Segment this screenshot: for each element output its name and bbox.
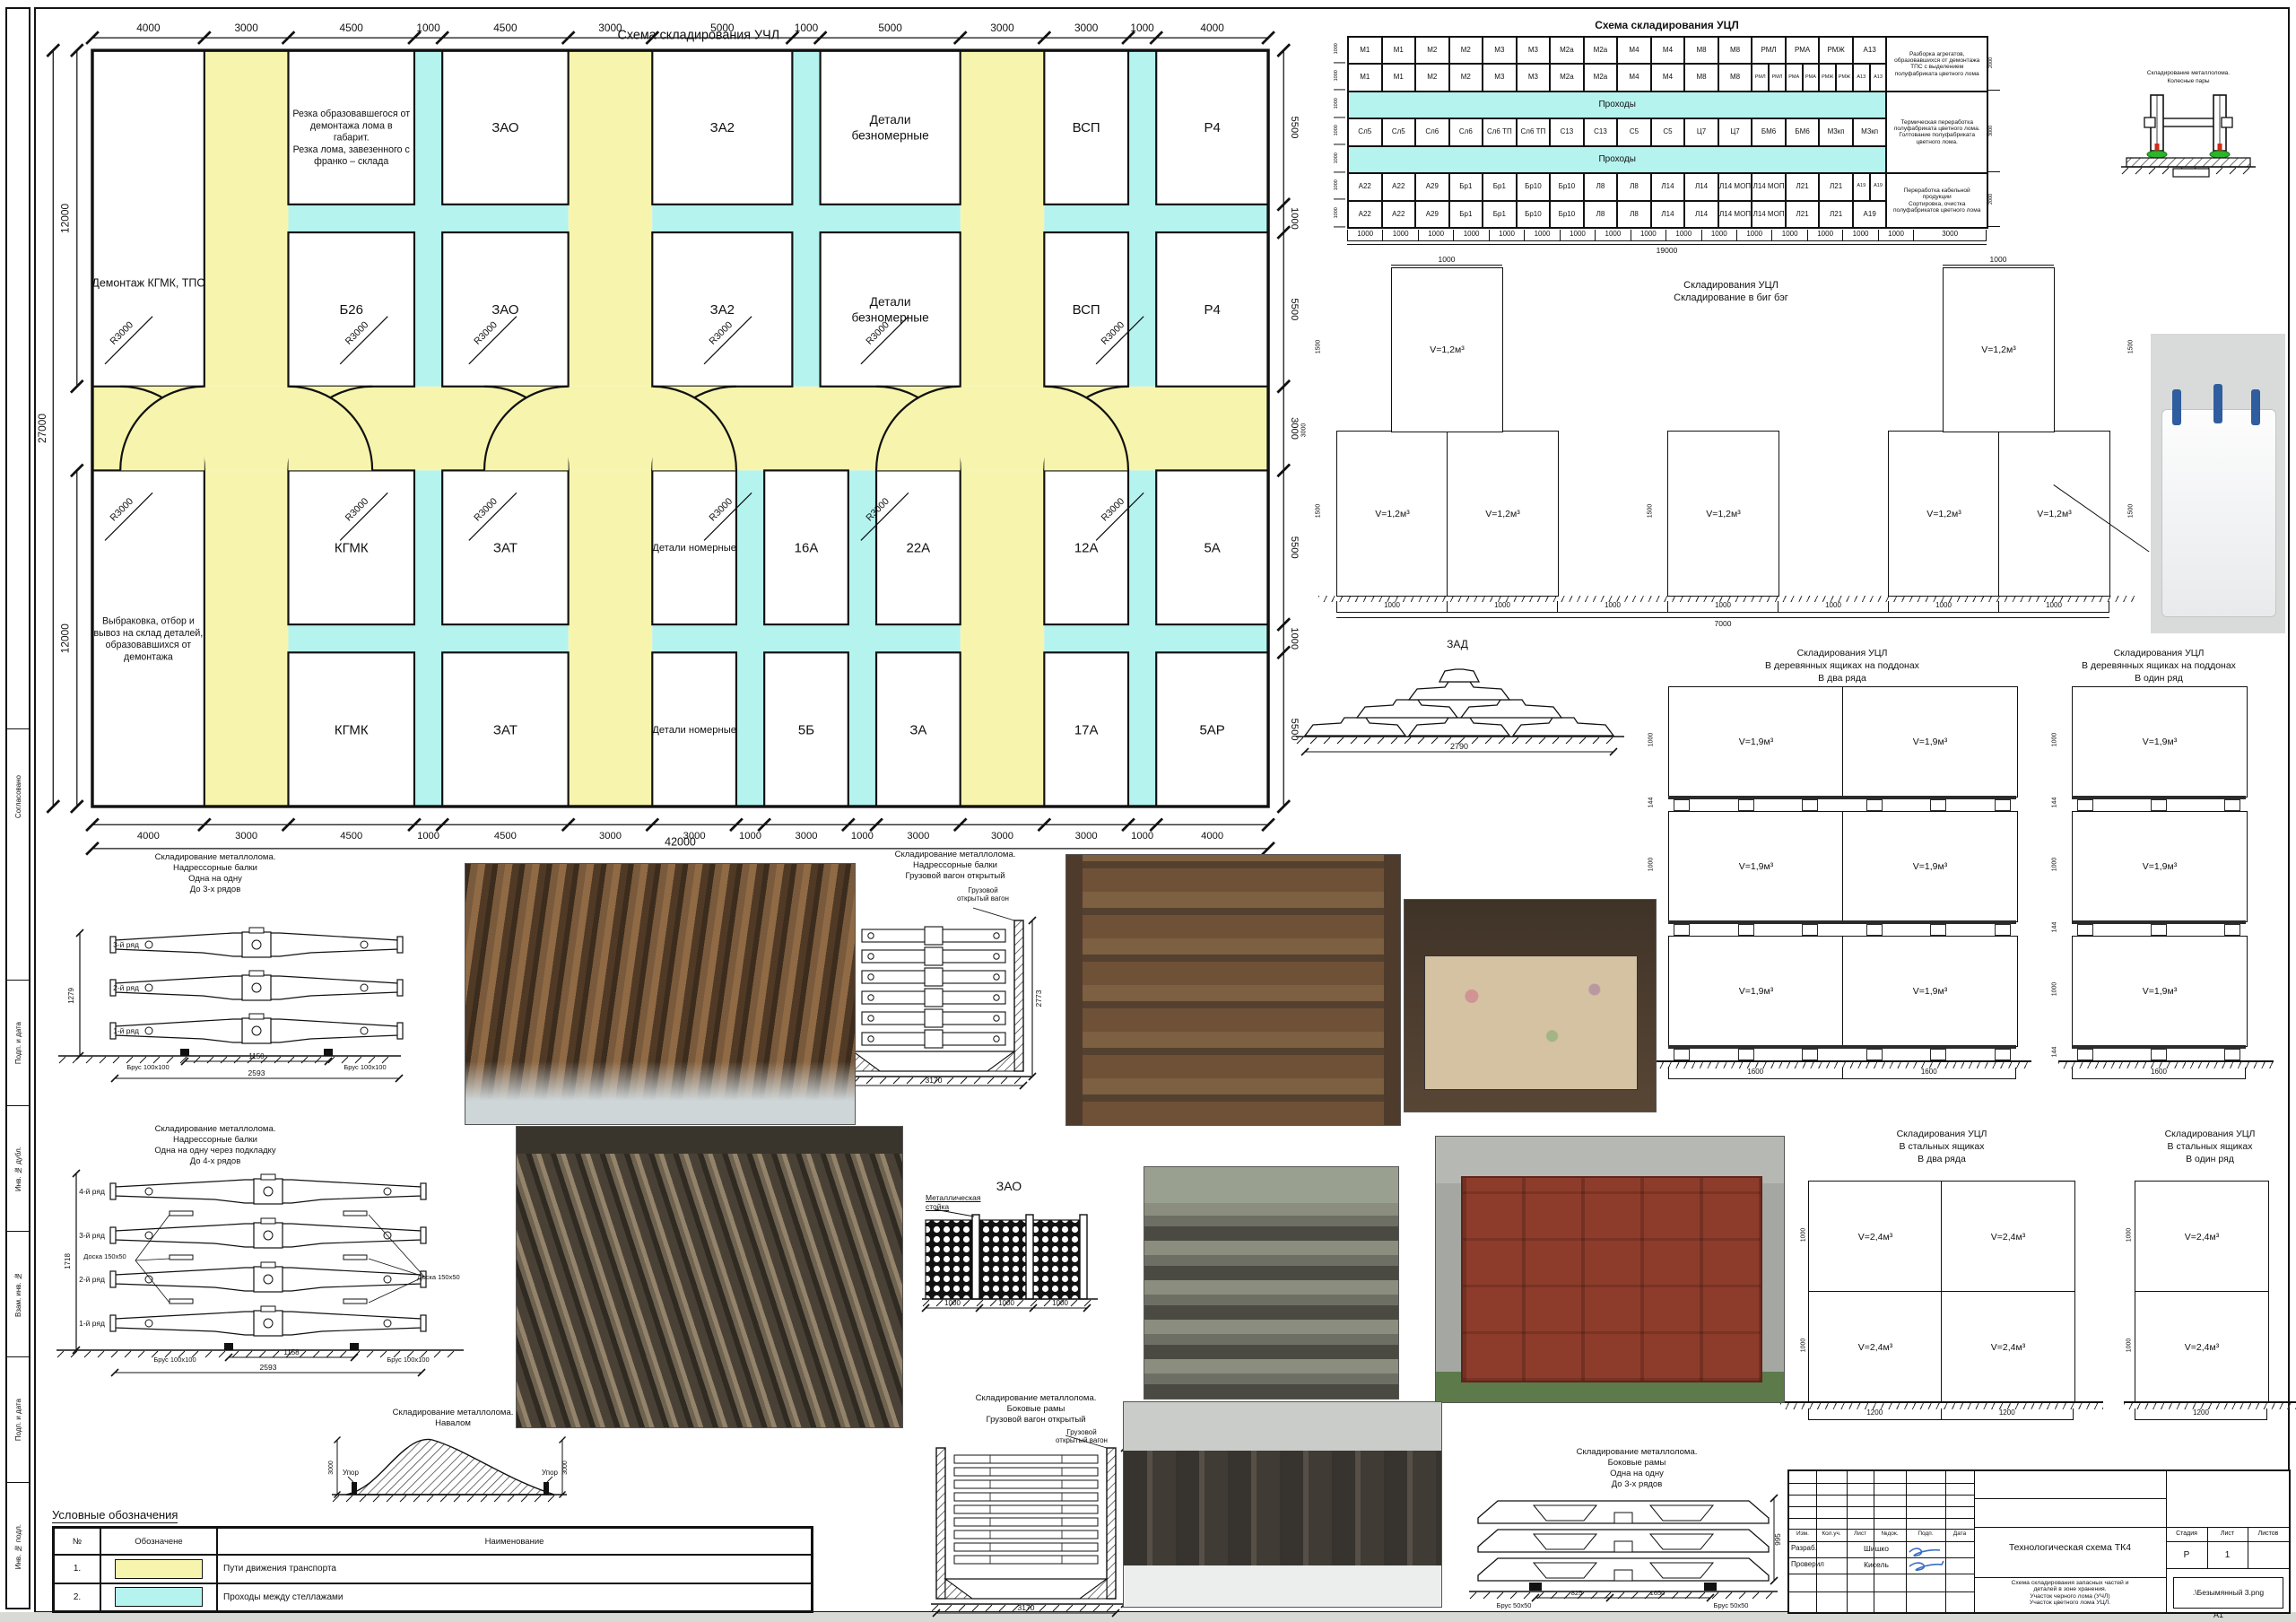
storage-cell: М8	[1684, 64, 1718, 91]
svg-text:1000: 1000	[944, 1299, 961, 1307]
dim-segment: 2000	[1988, 172, 2000, 227]
svg-text:1158: 1158	[283, 1348, 300, 1356]
section-title: В деревянных ящиках на поддонах	[1668, 660, 2016, 671]
margin-label: Подп. и дата	[7, 980, 29, 1106]
storage-cell: М2	[1415, 64, 1449, 91]
dim-segment: 1000	[1888, 601, 1998, 613]
bottom-dims: 16001600	[1668, 1068, 2016, 1079]
sheet-value: 1	[2207, 1550, 2248, 1560]
tblock-col-header: Дата	[1945, 1530, 1974, 1537]
svg-text:3-й ряд: 3-й ряд	[113, 940, 139, 949]
storage-cell: РМЛ	[1752, 64, 1769, 91]
section-title: В деревянных ящиках на поддонах	[2067, 660, 2250, 671]
storage-cell: М3	[1517, 64, 1551, 91]
dim-segment: 1000	[1489, 230, 1524, 241]
dim-label: 1500	[1316, 331, 1322, 363]
svg-text:Детали номерные: Детали номерные	[652, 725, 736, 736]
line	[2166, 1541, 2289, 1542]
svg-text:42000: 42000	[665, 836, 696, 849]
bigbag-section: Складирования УЦЛ Складирование в биг бэ…	[1300, 262, 2161, 648]
svg-text:2-й ряд: 2-й ряд	[113, 983, 139, 992]
svg-text:2790: 2790	[1450, 742, 1468, 751]
storage-cell: Л14 МОП	[1752, 201, 1786, 228]
svg-text:ЗАТ: ЗАТ	[493, 540, 517, 555]
storage-cell: С13	[1550, 118, 1584, 145]
big-bag-box: V=1,2м³	[1888, 431, 2000, 597]
dim-label: 144	[2052, 786, 2058, 818]
storage-box: V=1,9м³	[2072, 811, 2248, 922]
storage-cell: М3кп	[1819, 118, 1853, 145]
storage-cell: Л8	[1584, 173, 1618, 200]
svg-text:27000: 27000	[36, 414, 48, 443]
dim-segment: 1600	[2072, 1068, 2246, 1079]
dim-label: 1500	[1648, 495, 1654, 528]
storage-cell: РМА	[1786, 37, 1820, 64]
section-title: Складирования УЦЛ	[1780, 1129, 2103, 1139]
wagon-bolster-callout: Грузовой открытый вагон	[933, 886, 1033, 903]
storage-cell: С13	[1584, 118, 1618, 145]
svg-text:ЗА2: ЗА2	[710, 120, 735, 135]
storage-box: V=2,4м³	[1941, 1181, 2075, 1293]
dim-segment: 1000	[1334, 91, 1345, 118]
svg-text:4-й ряд: 4-й ряд	[79, 1187, 105, 1196]
svg-text:4000: 4000	[137, 831, 160, 842]
svg-text:3170: 3170	[1018, 1603, 1035, 1612]
section-title: В стальных ящиках	[1780, 1141, 2103, 1152]
storage-cell: С5	[1617, 118, 1651, 145]
storage-cell: Бр10	[1517, 173, 1551, 200]
line	[1974, 1527, 2289, 1528]
dim-segment: 1000	[1334, 172, 1345, 199]
svg-text:1150: 1150	[248, 1052, 265, 1060]
svg-text:1279: 1279	[67, 988, 75, 1004]
process-note-cell: Разборка агрегатов, образовавшихся от де…	[1886, 37, 1987, 92]
line	[1789, 1483, 1974, 1484]
ucl-left-dims: 1000100010001000100010001000	[1334, 36, 1345, 227]
dim-label: 1000	[2126, 1218, 2133, 1251]
photo-big-bag	[2151, 334, 2285, 633]
svg-text:4500: 4500	[494, 831, 517, 842]
svg-text:Упор: Упор	[343, 1469, 360, 1477]
storage-box: V=2,4м³	[1808, 1291, 1943, 1403]
storage-cell: РМА	[1786, 64, 1803, 91]
storage-box: V=1,9м³	[1842, 811, 2018, 922]
dim-segment: 1000	[1334, 118, 1345, 144]
tblock-col-header: Подп.	[1906, 1530, 1945, 1537]
svg-text:3170: 3170	[926, 1076, 943, 1085]
left-margin-strip: СогласованоПодп. и датаИнв. № дубл.Взам.…	[5, 7, 30, 1609]
steel-boxes-one-row: Складирования УЦЛВ стальных ящикахВ один…	[2124, 1127, 2296, 1441]
dim-label: 3000	[1301, 414, 1308, 447]
storage-box: V=1,9м³	[1842, 936, 2018, 1047]
section-title: В два ряда	[1668, 673, 2016, 684]
svg-text:Схема складирования УЧЛ: Схема складирования УЧЛ	[617, 29, 779, 43]
pallet	[2072, 920, 2246, 936]
title-block: Изм.Кол.уч.Лист№док.Подп.ДатаРазраб.Шишк…	[1787, 1469, 2291, 1614]
photo-bolster-pile	[465, 863, 856, 1125]
section-title: В стальных ящиках	[2124, 1141, 2296, 1152]
svg-text:КГМК: КГМК	[335, 722, 369, 737]
line	[1789, 1591, 1974, 1592]
svg-text:Демонтаж КГМК, ТПС: Демонтаж КГМК, ТПС	[91, 277, 204, 290]
process-note-cell: Термическая переработка полуфабриката цв…	[1886, 92, 1987, 173]
svg-text:4500: 4500	[340, 831, 362, 842]
svg-text:1650: 1650	[1650, 1589, 1665, 1597]
line	[2166, 1568, 2289, 1569]
tblock-col-header: Изм.	[1789, 1530, 1816, 1537]
bigbag-total-dim: 7000	[1336, 617, 2109, 628]
dim-segment: 1200	[2135, 1408, 2267, 1420]
bolster-stack-4-rows: 4-й ряд3-й ряд2-й ряд1-й ряд1718Доска 15…	[49, 1172, 471, 1382]
storage-box: V=2,4м³	[2135, 1181, 2269, 1293]
line	[1789, 1506, 1974, 1507]
dim-label: 144	[2052, 911, 2058, 943]
dim-label: 1500	[2128, 331, 2135, 363]
svg-text:5Б: 5Б	[798, 722, 814, 737]
stage-value: Р	[2166, 1550, 2207, 1560]
storage-cell: РМЛ	[1752, 37, 1786, 64]
sheet-header: Лист	[2207, 1530, 2248, 1538]
dim-segment: 1000	[1557, 601, 1667, 613]
storage-cell: А29	[1415, 201, 1449, 228]
svg-text:Р4: Р4	[1204, 120, 1220, 135]
svg-text:1000: 1000	[1289, 207, 1300, 230]
svg-text:5500: 5500	[1289, 117, 1300, 139]
dim-segment: 1000	[1418, 230, 1453, 241]
svg-text:Брус 50х50: Брус 50х50	[1497, 1601, 1532, 1609]
stage-header: Стадия	[2166, 1530, 2207, 1538]
bag-strap	[2172, 389, 2181, 425]
zao-bins-diagram: 100010001000	[922, 1215, 1101, 1315]
photo-side-frames-ground	[1144, 1166, 1399, 1400]
svg-text:3000: 3000	[1075, 831, 1098, 842]
svg-text:1-й ряд: 1-й ряд	[113, 1026, 139, 1035]
svg-text:ЗАО: ЗАО	[491, 302, 518, 318]
storage-cell: М2	[1449, 37, 1483, 64]
pallet	[2072, 796, 2246, 811]
svg-text:3000: 3000	[234, 22, 258, 34]
dim-segment: 1000	[1842, 230, 1877, 241]
dim-segment: 1000	[1334, 63, 1345, 90]
svg-text:4500: 4500	[340, 22, 364, 34]
svg-text:12000: 12000	[58, 204, 71, 233]
svg-text:12000: 12000	[58, 624, 71, 653]
svg-text:825: 825	[1571, 1589, 1583, 1597]
svg-text:Брус 100х100: Брус 100х100	[126, 1063, 169, 1071]
storage-cell: М8	[1718, 64, 1752, 91]
svg-text:1000: 1000	[795, 22, 819, 34]
svg-text:Брус 50х50: Брус 50х50	[1714, 1601, 1749, 1609]
storage-cell: М3	[1483, 64, 1517, 91]
transport-path-swatch	[115, 1559, 203, 1579]
storage-cell: Бр10	[1550, 173, 1584, 200]
svg-text:5А: 5А	[1204, 540, 1220, 555]
dim-segment: 1000	[1631, 230, 1665, 241]
mound-diagram: УпорУпор30003000	[332, 1432, 567, 1511]
zao-callout: Металлическая стойка	[926, 1194, 1024, 1212]
section-title: Одна на одну через подкладку	[85, 1147, 345, 1156]
svg-text:5500: 5500	[1289, 536, 1300, 559]
dim-segment: 3000	[1913, 230, 1987, 241]
storage-cell: М2а	[1584, 37, 1618, 64]
bag-strap	[2251, 389, 2260, 425]
dim-label: 1500	[1316, 495, 1322, 528]
ucl-table-title: Схема складирования УЦЛ	[1347, 20, 1987, 32]
tblock-col-header: Лист	[1847, 1530, 1874, 1537]
dim-segment: 1000	[1771, 230, 1806, 241]
bottom-dims: 1600	[2072, 1068, 2246, 1079]
line	[1789, 1541, 1974, 1542]
legend-row-name: Проходы между стеллажами	[217, 1583, 812, 1612]
storage-cell: А13	[1870, 64, 1887, 91]
svg-text:22А: 22А	[907, 540, 931, 555]
storage-cell: Л8	[1584, 201, 1618, 228]
legend-row-name: Пути движения транспорта	[217, 1555, 812, 1583]
storage-cell: Л14 МОП	[1718, 173, 1752, 200]
file-label: .\Безымянный 3.png	[2173, 1577, 2283, 1609]
storage-cell: А19	[1853, 173, 1870, 200]
dim-label: 1000	[2126, 1329, 2133, 1361]
svg-text:3000: 3000	[562, 1461, 569, 1475]
svg-text:5500: 5500	[1289, 298, 1300, 320]
svg-text:3000: 3000	[796, 831, 818, 842]
svg-text:1718: 1718	[64, 1253, 72, 1269]
storage-cell: Бр10	[1550, 201, 1584, 228]
svg-text:1000: 1000	[851, 831, 874, 842]
dim-segment: 1000	[1998, 601, 2109, 613]
name-value: Кисель	[1847, 1561, 1906, 1569]
photo-wooden-box	[1404, 899, 1657, 1112]
svg-text:2-й ряд: 2-й ряд	[79, 1275, 105, 1284]
storage-box: V=1,9м³	[1842, 686, 2018, 798]
svg-text:1000: 1000	[1131, 831, 1153, 842]
svg-text:2593: 2593	[248, 1068, 265, 1077]
section-title: Грузовой вагон открытый	[852, 872, 1058, 882]
storage-cell: М1	[1382, 37, 1416, 64]
svg-text:Упор: Упор	[542, 1469, 559, 1477]
dim-label: 144	[2052, 1035, 2058, 1068]
photo-beams-pile	[516, 1126, 903, 1428]
storage-cell: Сл6 ТП	[1517, 118, 1551, 145]
storage-cell: М4	[1651, 37, 1685, 64]
svg-text:3000: 3000	[235, 831, 257, 842]
bag-strap	[2213, 384, 2222, 423]
storage-cell: Л14	[1651, 173, 1685, 200]
svg-text:Брус 100х100: Брус 100х100	[387, 1356, 429, 1364]
section-title: Надрессорные балки	[85, 864, 345, 874]
storage-cell: М4	[1617, 37, 1651, 64]
margin-label: Согласовано	[7, 728, 29, 864]
dim-segment: 1000	[1807, 230, 1842, 241]
tblock-col-header: Кол.уч.	[1816, 1530, 1847, 1537]
pallet	[1668, 920, 2016, 936]
bigbag-title-1: Складирования УЦЛ	[1596, 280, 1865, 292]
svg-text:4000: 4000	[1200, 22, 1224, 34]
storage-cell: М1	[1382, 64, 1416, 91]
wheelset-caption-2: Колесные пары	[2108, 78, 2269, 84]
line	[1974, 1498, 2166, 1499]
legend-col-sym: Обозначене	[100, 1528, 217, 1555]
legend-swatch-cell	[100, 1583, 217, 1612]
storage-cell: Л8	[1617, 173, 1651, 200]
storage-cell: М2а	[1584, 64, 1618, 91]
line	[1789, 1518, 1974, 1519]
dim-segment: 1000	[1736, 230, 1771, 241]
dim-label: 1000	[1801, 1218, 1807, 1251]
dim-segment: 1000	[1667, 601, 1778, 613]
sheets-header: Листов	[2248, 1530, 2289, 1538]
storage-cell: М8	[1718, 37, 1752, 64]
legend-row-num: 2.	[54, 1583, 100, 1612]
storage-cell: РМЖ	[1836, 64, 1853, 91]
storage-cell: РМЛ	[1769, 64, 1786, 91]
section-title: До 3-х рядов	[1516, 1480, 1758, 1490]
storage-cell: А29	[1415, 173, 1449, 200]
side-frames-wagon-diagram: 27733170	[931, 1435, 1142, 1611]
svg-text:4500: 4500	[493, 22, 517, 34]
storage-box: V=1,9м³	[1668, 936, 1844, 1047]
margin-label: Взам. инв. №	[7, 1231, 29, 1357]
storage-cell: А13	[1853, 37, 1887, 64]
ucl-right-dims: 200030002000	[1988, 36, 2000, 227]
big-bag-box: V=1,2м³	[1447, 431, 1559, 597]
margin-label: Инв. № подл.	[7, 1482, 29, 1610]
svg-text:ЗА2: ЗА2	[710, 302, 735, 318]
dim-segment: 2000	[1988, 36, 2000, 91]
svg-text:2773: 2773	[1034, 990, 1043, 1007]
photo-steel-container	[1435, 1136, 1785, 1403]
ucl-bottom-dims: 1000100010001000100010001000100010001000…	[1347, 230, 1987, 241]
svg-text:1000: 1000	[417, 831, 439, 842]
svg-text:3-й ряд: 3-й ряд	[79, 1231, 105, 1240]
pallet	[1668, 1045, 2016, 1060]
svg-text:ЗА: ЗА	[909, 722, 926, 737]
svg-text:1000: 1000	[416, 22, 440, 34]
dim-segment: 3000	[1988, 91, 2000, 172]
svg-text:ЗАТ: ЗАТ	[493, 722, 517, 737]
svg-text:3000: 3000	[1074, 22, 1099, 34]
dim-segment: 1600	[1842, 1068, 2017, 1079]
section-title: Одна на одну	[1516, 1469, 1758, 1479]
dim-segment: 1000	[1778, 601, 1888, 613]
document-subtitle: Схема складирования запасных частей и де…	[1976, 1580, 2164, 1607]
storage-box: V=2,4м³	[2135, 1291, 2269, 1403]
svg-text:Доска 150х50: Доска 150х50	[83, 1252, 126, 1260]
dim-segment: 1000	[1347, 230, 1382, 241]
svg-text:16А: 16А	[795, 540, 819, 555]
zao-title: ЗАО	[978, 1179, 1040, 1193]
svg-text:Брус 100х100: Брус 100х100	[344, 1063, 386, 1071]
legend-swatch-cell	[100, 1555, 217, 1583]
storage-cell: Бр10	[1517, 201, 1551, 228]
storage-cell: Л21	[1786, 201, 1820, 228]
storage-cell: Л14 МОП	[1718, 201, 1752, 228]
svg-text:1-й ряд: 1-й ряд	[79, 1319, 105, 1328]
section-title: Складирования УЦЛ	[2124, 1129, 2296, 1139]
section-title: Надрессорные балки	[85, 1136, 345, 1146]
svg-text:Р4: Р4	[1204, 302, 1220, 318]
storage-cell: Л14	[1651, 201, 1685, 228]
svg-text:17А: 17А	[1074, 722, 1099, 737]
dim-segment: 1000	[1453, 230, 1488, 241]
svg-text:5000: 5000	[878, 22, 902, 34]
storage-cell: А22	[1382, 173, 1416, 200]
storage-cell: М1	[1348, 64, 1382, 91]
svg-text:3000: 3000	[599, 831, 622, 842]
section-title: Одна на одну	[85, 875, 345, 885]
line	[1789, 1574, 1974, 1574]
dim-segment: 1000	[1334, 36, 1345, 63]
svg-text:3000: 3000	[907, 831, 929, 842]
legend: Условные обозначения № Обозначене Наимен…	[45, 1509, 825, 1613]
storage-cell: Л8	[1617, 201, 1651, 228]
svg-text:1000: 1000	[1052, 1299, 1068, 1307]
svg-text:1000: 1000	[1289, 627, 1300, 650]
section-title: Складирование металлолома.	[933, 1394, 1139, 1404]
svg-text:ВСП: ВСП	[1073, 302, 1100, 318]
svg-text:ВСП: ВСП	[1073, 120, 1100, 135]
big-bag-box: V=1,2м³	[1391, 267, 1503, 432]
storage-cell: Л21	[1786, 173, 1820, 200]
svg-text:3000: 3000	[328, 1461, 335, 1475]
wooden-box-shape	[1424, 955, 1638, 1090]
legend-title: Условные обозначения	[52, 1509, 178, 1523]
passage-cell: Проходы	[1348, 92, 1886, 118]
svg-text:3000: 3000	[990, 22, 1014, 34]
section-title: В один ряд	[2067, 673, 2250, 684]
bigbag-bottom-dims: 1000100010001000100010001000	[1336, 601, 2109, 613]
dim-label: 1000	[2052, 973, 2058, 1006]
svg-text:12А: 12А	[1074, 540, 1099, 555]
section-title: Складирование металлолома.	[1516, 1448, 1758, 1458]
dim-segment: 1000	[1334, 145, 1345, 172]
pallet	[2072, 1045, 2246, 1060]
section-title: Надрессорные балки	[852, 861, 1058, 871]
storage-cell: А22	[1348, 201, 1382, 228]
section-title: Грузовой вагон открытый	[933, 1416, 1139, 1426]
section-title: Складирование металлолома.	[852, 850, 1058, 860]
section-title: Боковые рамы	[933, 1405, 1139, 1415]
line	[1789, 1495, 1974, 1496]
storage-cell: Сл5	[1348, 118, 1382, 145]
uchl-storage-plan: Демонтаж КГМК, ТПСРезка образовавшегося …	[38, 13, 1297, 855]
bottom-dims: 1200	[2135, 1408, 2267, 1420]
svg-text:3000: 3000	[598, 22, 622, 34]
signature	[1906, 1539, 1945, 1575]
drawing-sheet: СогласованоПодп. и датаИнв. № дубл.Взам.…	[0, 0, 2296, 1622]
storage-cell: Ц7	[1684, 118, 1718, 145]
process-note-cell: Переработка кабельной продукции Сортиров…	[1886, 173, 1987, 228]
dim-label: 1000	[2052, 724, 2058, 756]
storage-box: V=1,9м³	[1668, 811, 1844, 922]
name-value: Шишко	[1847, 1545, 1906, 1553]
storage-cell: М4	[1651, 64, 1685, 91]
big-bag-box: V=1,2м³	[1943, 267, 2055, 432]
dim-segment: 1200	[1941, 1408, 2074, 1420]
storage-cell: М4	[1617, 64, 1651, 91]
storage-cell: Л14	[1684, 201, 1718, 228]
wood-boxes-two-rows: Складирования УЦЛВ деревянных ящиках на …	[1655, 646, 2031, 1087]
storage-cell: М3	[1483, 37, 1517, 64]
dim-segment: 1000	[1524, 230, 1559, 241]
dim-segment: 1000	[1447, 601, 1557, 613]
photo-wagon-interior	[1065, 854, 1401, 1126]
svg-text:5АР: 5АР	[1199, 722, 1224, 737]
svg-text:3000: 3000	[1289, 417, 1300, 440]
storage-box: V=1,9м³	[2072, 936, 2248, 1047]
wheelset-icon	[2121, 88, 2256, 178]
ucl-storage-table: М1М1М2М2М3М3М2аМ2аМ4М4М8М8РМЛРМАРМЖА13Ра…	[1347, 36, 1988, 229]
